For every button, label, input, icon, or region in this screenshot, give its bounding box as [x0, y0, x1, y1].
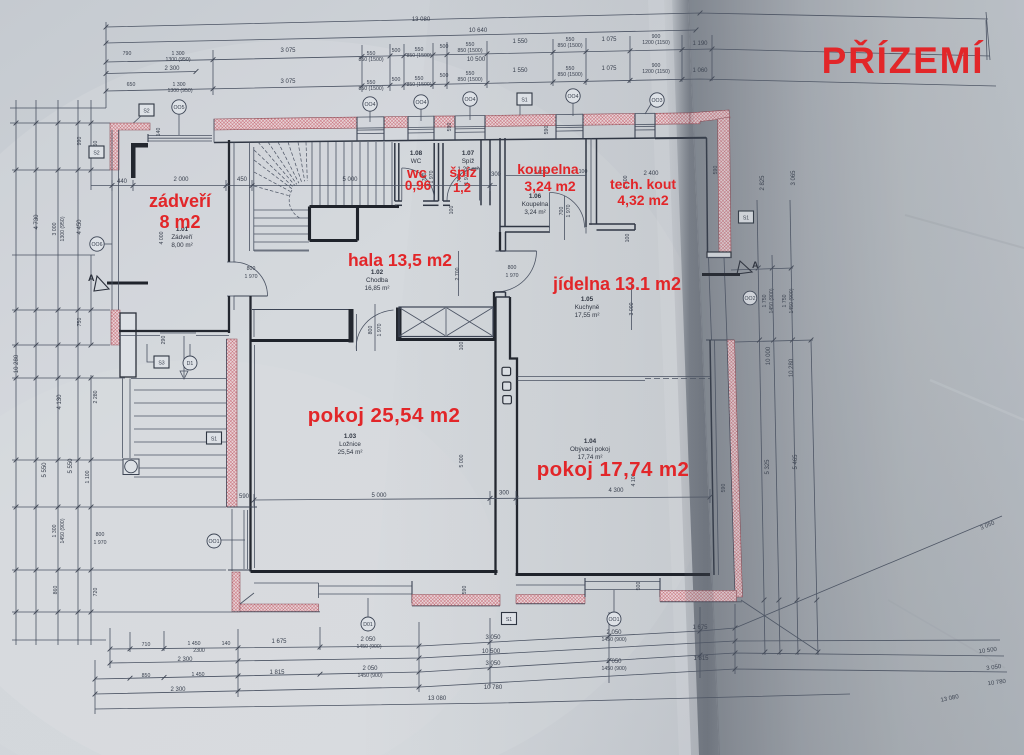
svg-text:4 000: 4 000: [159, 231, 165, 244]
svg-text:D01: D01: [363, 622, 373, 628]
svg-text:140: 140: [156, 128, 162, 137]
svg-text:1300 (950): 1300 (950): [167, 88, 192, 94]
svg-text:3 075: 3 075: [280, 79, 296, 85]
svg-text:1300 (950): 1300 (950): [60, 216, 66, 241]
svg-text:5 550: 5 550: [68, 458, 74, 474]
svg-text:1450 (900): 1450 (900): [356, 644, 381, 650]
svg-text:1.08: 1.08: [410, 150, 423, 157]
svg-text:850 (1500): 850 (1500): [557, 72, 582, 78]
svg-text:OO6: OO6: [92, 242, 103, 248]
svg-text:1 075: 1 075: [601, 66, 617, 72]
svg-text:1 450: 1 450: [192, 672, 205, 678]
svg-text:5 550: 5 550: [42, 462, 48, 478]
svg-text:850 (1500): 850 (1500): [406, 82, 431, 88]
svg-text:OO3: OO3: [652, 98, 663, 104]
svg-text:1450 (900): 1450 (900): [601, 666, 626, 672]
svg-text:D1: D1: [187, 361, 194, 367]
svg-text:4 450: 4 450: [77, 219, 83, 235]
svg-text:10 780: 10 780: [484, 685, 503, 691]
svg-text:3 075: 3 075: [280, 48, 296, 54]
svg-text:450: 450: [237, 177, 248, 183]
svg-text:2 050: 2 050: [362, 666, 378, 672]
svg-text:1.04: 1.04: [584, 438, 597, 445]
svg-text:OO4: OO4: [416, 100, 427, 106]
svg-text:800: 800: [368, 326, 374, 335]
svg-text:4 730: 4 730: [34, 214, 40, 230]
svg-text:4,32 m2: 4,32 m2: [617, 192, 669, 208]
svg-text:1.05: 1.05: [581, 296, 594, 303]
svg-text:1450 (900): 1450 (900): [601, 637, 626, 643]
svg-text:Chodba: Chodba: [366, 277, 389, 284]
svg-text:S2: S2: [143, 109, 149, 115]
svg-text:8 m2: 8 m2: [159, 212, 200, 232]
svg-text:Kuchyně: Kuchyně: [575, 304, 600, 311]
svg-text:10 500: 10 500: [482, 649, 501, 655]
svg-text:Ložnice: Ložnice: [339, 441, 361, 448]
svg-text:2300: 2300: [193, 648, 205, 654]
svg-text:2 280: 2 280: [93, 390, 99, 403]
svg-text:3,24 m²: 3,24 m²: [524, 209, 545, 216]
svg-text:3 050: 3 050: [485, 635, 501, 641]
svg-text:OO4: OO4: [568, 94, 579, 100]
svg-text:100: 100: [625, 234, 631, 243]
svg-text:590: 590: [544, 126, 550, 135]
svg-text:500: 500: [636, 582, 642, 591]
svg-text:koupelna: koupelna: [517, 161, 579, 177]
svg-text:300: 300: [491, 172, 502, 178]
svg-text:1 100: 1 100: [85, 470, 91, 483]
svg-text:hala 13,5 m2: hala 13,5 m2: [348, 250, 452, 270]
svg-text:4 130: 4 130: [57, 394, 63, 410]
svg-text:10 640: 10 640: [469, 28, 488, 34]
svg-text:zádveří: zádveří: [149, 191, 212, 211]
svg-text:1,2: 1,2: [453, 180, 471, 195]
svg-text:500: 500: [440, 73, 449, 79]
svg-text:650: 650: [127, 82, 136, 88]
svg-text:5 000: 5 000: [342, 177, 358, 183]
svg-text:590: 590: [447, 123, 453, 132]
svg-text:850 (1500): 850 (1500): [406, 53, 431, 59]
svg-text:OO4: OO4: [365, 102, 376, 108]
svg-text:1 815: 1 815: [269, 670, 285, 676]
svg-text:100: 100: [449, 206, 455, 215]
svg-text:13 080: 13 080: [428, 696, 447, 702]
svg-text:590: 590: [462, 586, 468, 595]
svg-text:13 080: 13 080: [412, 17, 431, 23]
svg-text:800: 800: [247, 266, 256, 272]
svg-text:Zádveří: Zádveří: [171, 234, 193, 241]
svg-text:pokoj 17,74 m2: pokoj 17,74 m2: [537, 458, 690, 481]
svg-text:1 970: 1 970: [94, 540, 107, 546]
svg-text:1.07: 1.07: [462, 150, 475, 157]
svg-text:Koupelna: Koupelna: [522, 201, 549, 208]
svg-text:S2: S2: [93, 151, 99, 157]
svg-text:OO4: OO4: [465, 97, 476, 103]
svg-text:2 700: 2 700: [455, 267, 461, 280]
svg-text:1450 (900): 1450 (900): [357, 673, 382, 679]
svg-text:0,96: 0,96: [405, 178, 432, 193]
svg-text:S1: S1: [211, 437, 217, 443]
svg-text:1 300: 1 300: [52, 524, 58, 537]
svg-text:1 970: 1 970: [506, 273, 519, 279]
svg-text:1 550: 1 550: [512, 39, 528, 45]
svg-text:790: 790: [123, 51, 132, 57]
svg-text:8,00 m²: 8,00 m²: [171, 242, 192, 249]
svg-text:OO1: OO1: [609, 617, 620, 623]
svg-text:500: 500: [440, 44, 449, 50]
svg-text:2 300: 2 300: [177, 657, 193, 663]
svg-text:3 000: 3 000: [629, 302, 635, 315]
svg-text:1 450: 1 450: [188, 641, 201, 647]
svg-text:710: 710: [142, 642, 151, 648]
svg-text:100: 100: [459, 342, 465, 351]
svg-text:850 (1500): 850 (1500): [358, 57, 383, 63]
svg-text:2 050: 2 050: [606, 630, 622, 636]
svg-text:2 050: 2 050: [360, 637, 376, 643]
svg-text:10 280: 10 280: [14, 354, 20, 373]
svg-text:1200 (1150): 1200 (1150): [642, 69, 670, 75]
svg-text:290: 290: [161, 336, 167, 345]
svg-text:850 (1500): 850 (1500): [358, 86, 383, 92]
svg-text:500: 500: [392, 48, 401, 54]
svg-text:500: 500: [392, 77, 401, 83]
svg-text:S1: S1: [521, 98, 527, 104]
svg-text:špíz: špíz: [449, 164, 476, 180]
svg-text:jídelna 13.1 m2: jídelna 13.1 m2: [552, 274, 681, 294]
svg-text:tech. kout: tech. kout: [610, 176, 676, 192]
svg-text:1 675: 1 675: [271, 639, 287, 645]
svg-text:S3: S3: [158, 361, 164, 367]
svg-text:17,55 m²: 17,55 m²: [575, 312, 600, 319]
svg-text:WC: WC: [411, 158, 422, 165]
svg-text:pokoj 25,54 m2: pokoj 25,54 m2: [308, 404, 461, 427]
svg-text:2 300: 2 300: [170, 687, 186, 693]
svg-text:800: 800: [508, 265, 517, 271]
svg-text:140: 140: [222, 641, 231, 647]
svg-text:25,54 m²: 25,54 m²: [338, 449, 363, 456]
svg-text:720: 720: [93, 588, 99, 597]
svg-text:990: 990: [77, 137, 83, 146]
svg-text:5 000: 5 000: [459, 454, 465, 467]
svg-text:3 050: 3 050: [485, 661, 501, 667]
svg-text:100: 100: [579, 169, 588, 175]
svg-text:3 000: 3 000: [52, 222, 58, 235]
svg-text:5 000: 5 000: [371, 493, 387, 499]
svg-text:16,85 m²: 16,85 m²: [365, 285, 390, 292]
svg-text:1 970: 1 970: [377, 323, 383, 336]
svg-text:S1: S1: [506, 617, 512, 623]
svg-text:Obývací pokoj: Obývací pokoj: [570, 446, 610, 453]
svg-text:OO5: OO5: [174, 105, 185, 111]
svg-text:590: 590: [239, 494, 250, 500]
svg-text:PŘÍZEMÍ: PŘÍZEMÍ: [822, 39, 985, 81]
svg-text:1300 (950): 1300 (950): [165, 57, 190, 63]
svg-text:850 (1500): 850 (1500): [457, 77, 482, 83]
svg-text:800: 800: [96, 532, 105, 538]
svg-text:1.02: 1.02: [371, 269, 384, 276]
svg-text:10 500: 10 500: [467, 57, 486, 63]
svg-text:440: 440: [117, 179, 128, 185]
svg-text:2 000: 2 000: [173, 177, 189, 183]
svg-text:860: 860: [53, 586, 59, 595]
svg-text:1 550: 1 550: [512, 68, 528, 74]
svg-text:1 075: 1 075: [601, 37, 617, 43]
svg-text:850 (1500): 850 (1500): [557, 43, 582, 49]
svg-text:4 300: 4 300: [608, 488, 624, 494]
svg-text:2 300: 2 300: [164, 66, 180, 72]
svg-text:2 050: 2 050: [606, 659, 622, 665]
svg-text:A: A: [88, 273, 95, 283]
svg-text:3,24 m2: 3,24 m2: [524, 178, 576, 194]
svg-text:1 970: 1 970: [566, 204, 572, 217]
svg-text:OO1: OO1: [209, 539, 220, 545]
svg-text:1.06: 1.06: [529, 193, 542, 200]
svg-text:1 970: 1 970: [245, 274, 258, 280]
svg-text:1450 (900): 1450 (900): [60, 518, 66, 543]
svg-text:850: 850: [142, 673, 151, 679]
svg-text:750: 750: [77, 318, 83, 327]
svg-text:300: 300: [499, 491, 510, 497]
svg-text:1.03: 1.03: [344, 433, 357, 440]
svg-text:850 (1500): 850 (1500): [457, 48, 482, 54]
